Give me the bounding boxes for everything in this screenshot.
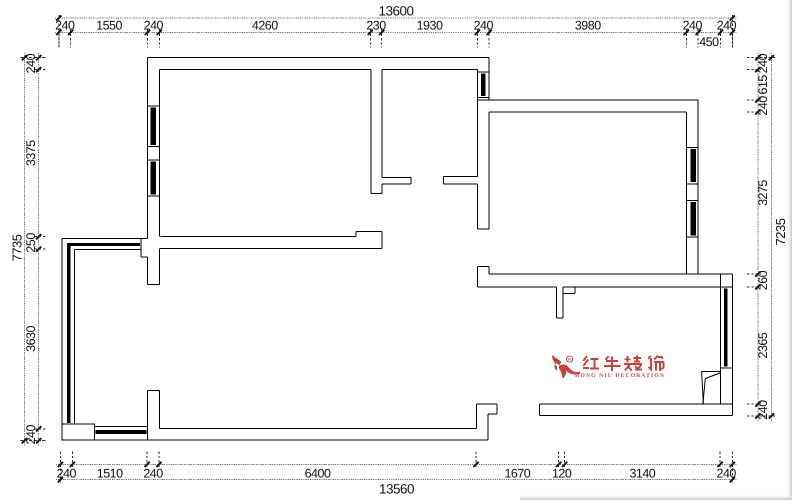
svg-text:250: 250 <box>24 233 38 253</box>
svg-text:1550: 1550 <box>96 18 122 32</box>
svg-text:7735: 7735 <box>9 234 24 261</box>
svg-text:1510: 1510 <box>97 466 123 480</box>
svg-text:2365: 2365 <box>756 332 770 358</box>
svg-text:240: 240 <box>683 18 703 32</box>
svg-text:240: 240 <box>474 18 494 32</box>
svg-text:240: 240 <box>717 18 737 32</box>
svg-text:240: 240 <box>144 18 164 32</box>
svg-text:3140: 3140 <box>629 466 655 480</box>
svg-text:HONG NIU DECORATION: HONG NIU DECORATION <box>575 373 665 379</box>
svg-text:3980: 3980 <box>575 18 601 32</box>
svg-text:240: 240 <box>756 400 770 420</box>
svg-text:240: 240 <box>24 425 38 445</box>
svg-text:240: 240 <box>57 466 77 480</box>
svg-text:230: 230 <box>366 18 386 32</box>
svg-text:13560: 13560 <box>379 481 414 496</box>
svg-text:13600: 13600 <box>378 3 413 18</box>
svg-text:260: 260 <box>756 270 770 290</box>
svg-text:240: 240 <box>143 466 163 480</box>
svg-text:120: 120 <box>552 466 572 480</box>
svg-text:240: 240 <box>55 18 75 32</box>
svg-text:1670: 1670 <box>504 466 530 480</box>
svg-text:6400: 6400 <box>305 466 331 480</box>
svg-text:240: 240 <box>756 53 770 73</box>
svg-text:615: 615 <box>756 75 770 95</box>
svg-text:450: 450 <box>699 35 719 49</box>
svg-text:3630: 3630 <box>24 326 38 352</box>
svg-text:3375: 3375 <box>24 140 38 166</box>
svg-text:240: 240 <box>24 53 38 73</box>
svg-text:1930: 1930 <box>417 18 443 32</box>
svg-text:4260: 4260 <box>252 18 278 32</box>
svg-text:240: 240 <box>756 96 770 116</box>
svg-text:3275: 3275 <box>756 180 770 206</box>
svg-text:7235: 7235 <box>773 218 788 245</box>
